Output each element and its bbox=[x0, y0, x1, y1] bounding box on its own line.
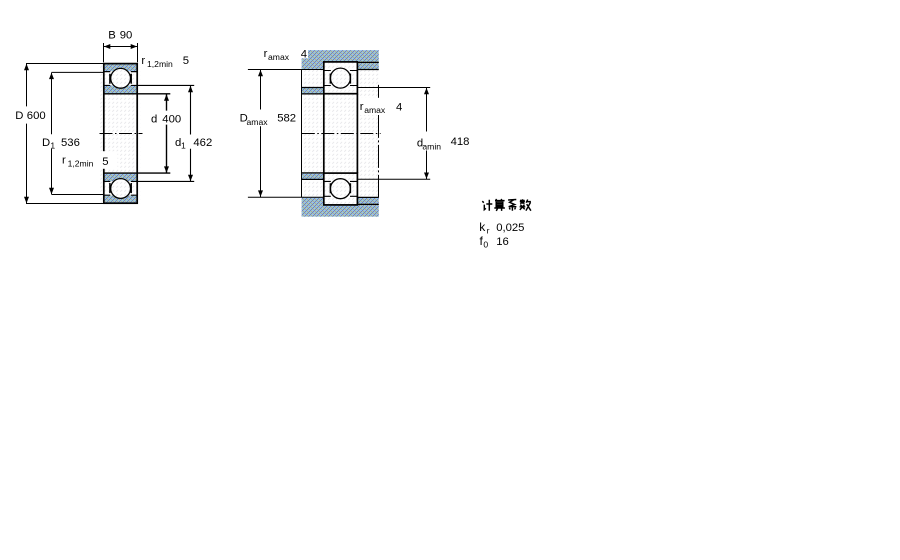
svg-text:0: 0 bbox=[483, 240, 488, 250]
svg-text:418: 418 bbox=[451, 136, 470, 148]
svg-text:amax: amax bbox=[247, 117, 269, 127]
svg-text:r: r bbox=[487, 226, 490, 236]
svg-text:d: d bbox=[151, 114, 157, 126]
svg-text:5: 5 bbox=[183, 55, 189, 67]
svg-text:amax: amax bbox=[364, 105, 386, 115]
svg-text:582: 582 bbox=[277, 113, 296, 125]
svg-text:D: D bbox=[42, 137, 50, 149]
svg-text:536: 536 bbox=[61, 137, 80, 149]
svg-text:amin: amin bbox=[422, 141, 441, 151]
svg-text:B: B bbox=[108, 30, 116, 42]
svg-text:amax: amax bbox=[268, 52, 290, 62]
svg-text:90: 90 bbox=[120, 30, 133, 42]
svg-text:4: 4 bbox=[396, 101, 402, 113]
svg-text:5: 5 bbox=[102, 156, 108, 168]
svg-text:r: r bbox=[264, 48, 268, 60]
svg-text:r: r bbox=[62, 155, 66, 167]
svg-text:1,2min: 1,2min bbox=[147, 59, 173, 69]
svg-text:r: r bbox=[360, 101, 364, 113]
svg-text:462: 462 bbox=[193, 137, 212, 149]
svg-text:400: 400 bbox=[162, 114, 181, 126]
svg-text:0,025: 0,025 bbox=[496, 222, 524, 234]
svg-text:1: 1 bbox=[50, 140, 55, 150]
svg-text:D: D bbox=[15, 110, 23, 122]
svg-text:r: r bbox=[141, 55, 145, 67]
svg-text:4: 4 bbox=[301, 48, 307, 60]
svg-text:16: 16 bbox=[496, 236, 509, 248]
svg-text:k: k bbox=[479, 220, 486, 234]
svg-text:1: 1 bbox=[181, 141, 186, 151]
svg-text:600: 600 bbox=[27, 110, 46, 122]
svg-text:1,2min: 1,2min bbox=[68, 159, 94, 169]
